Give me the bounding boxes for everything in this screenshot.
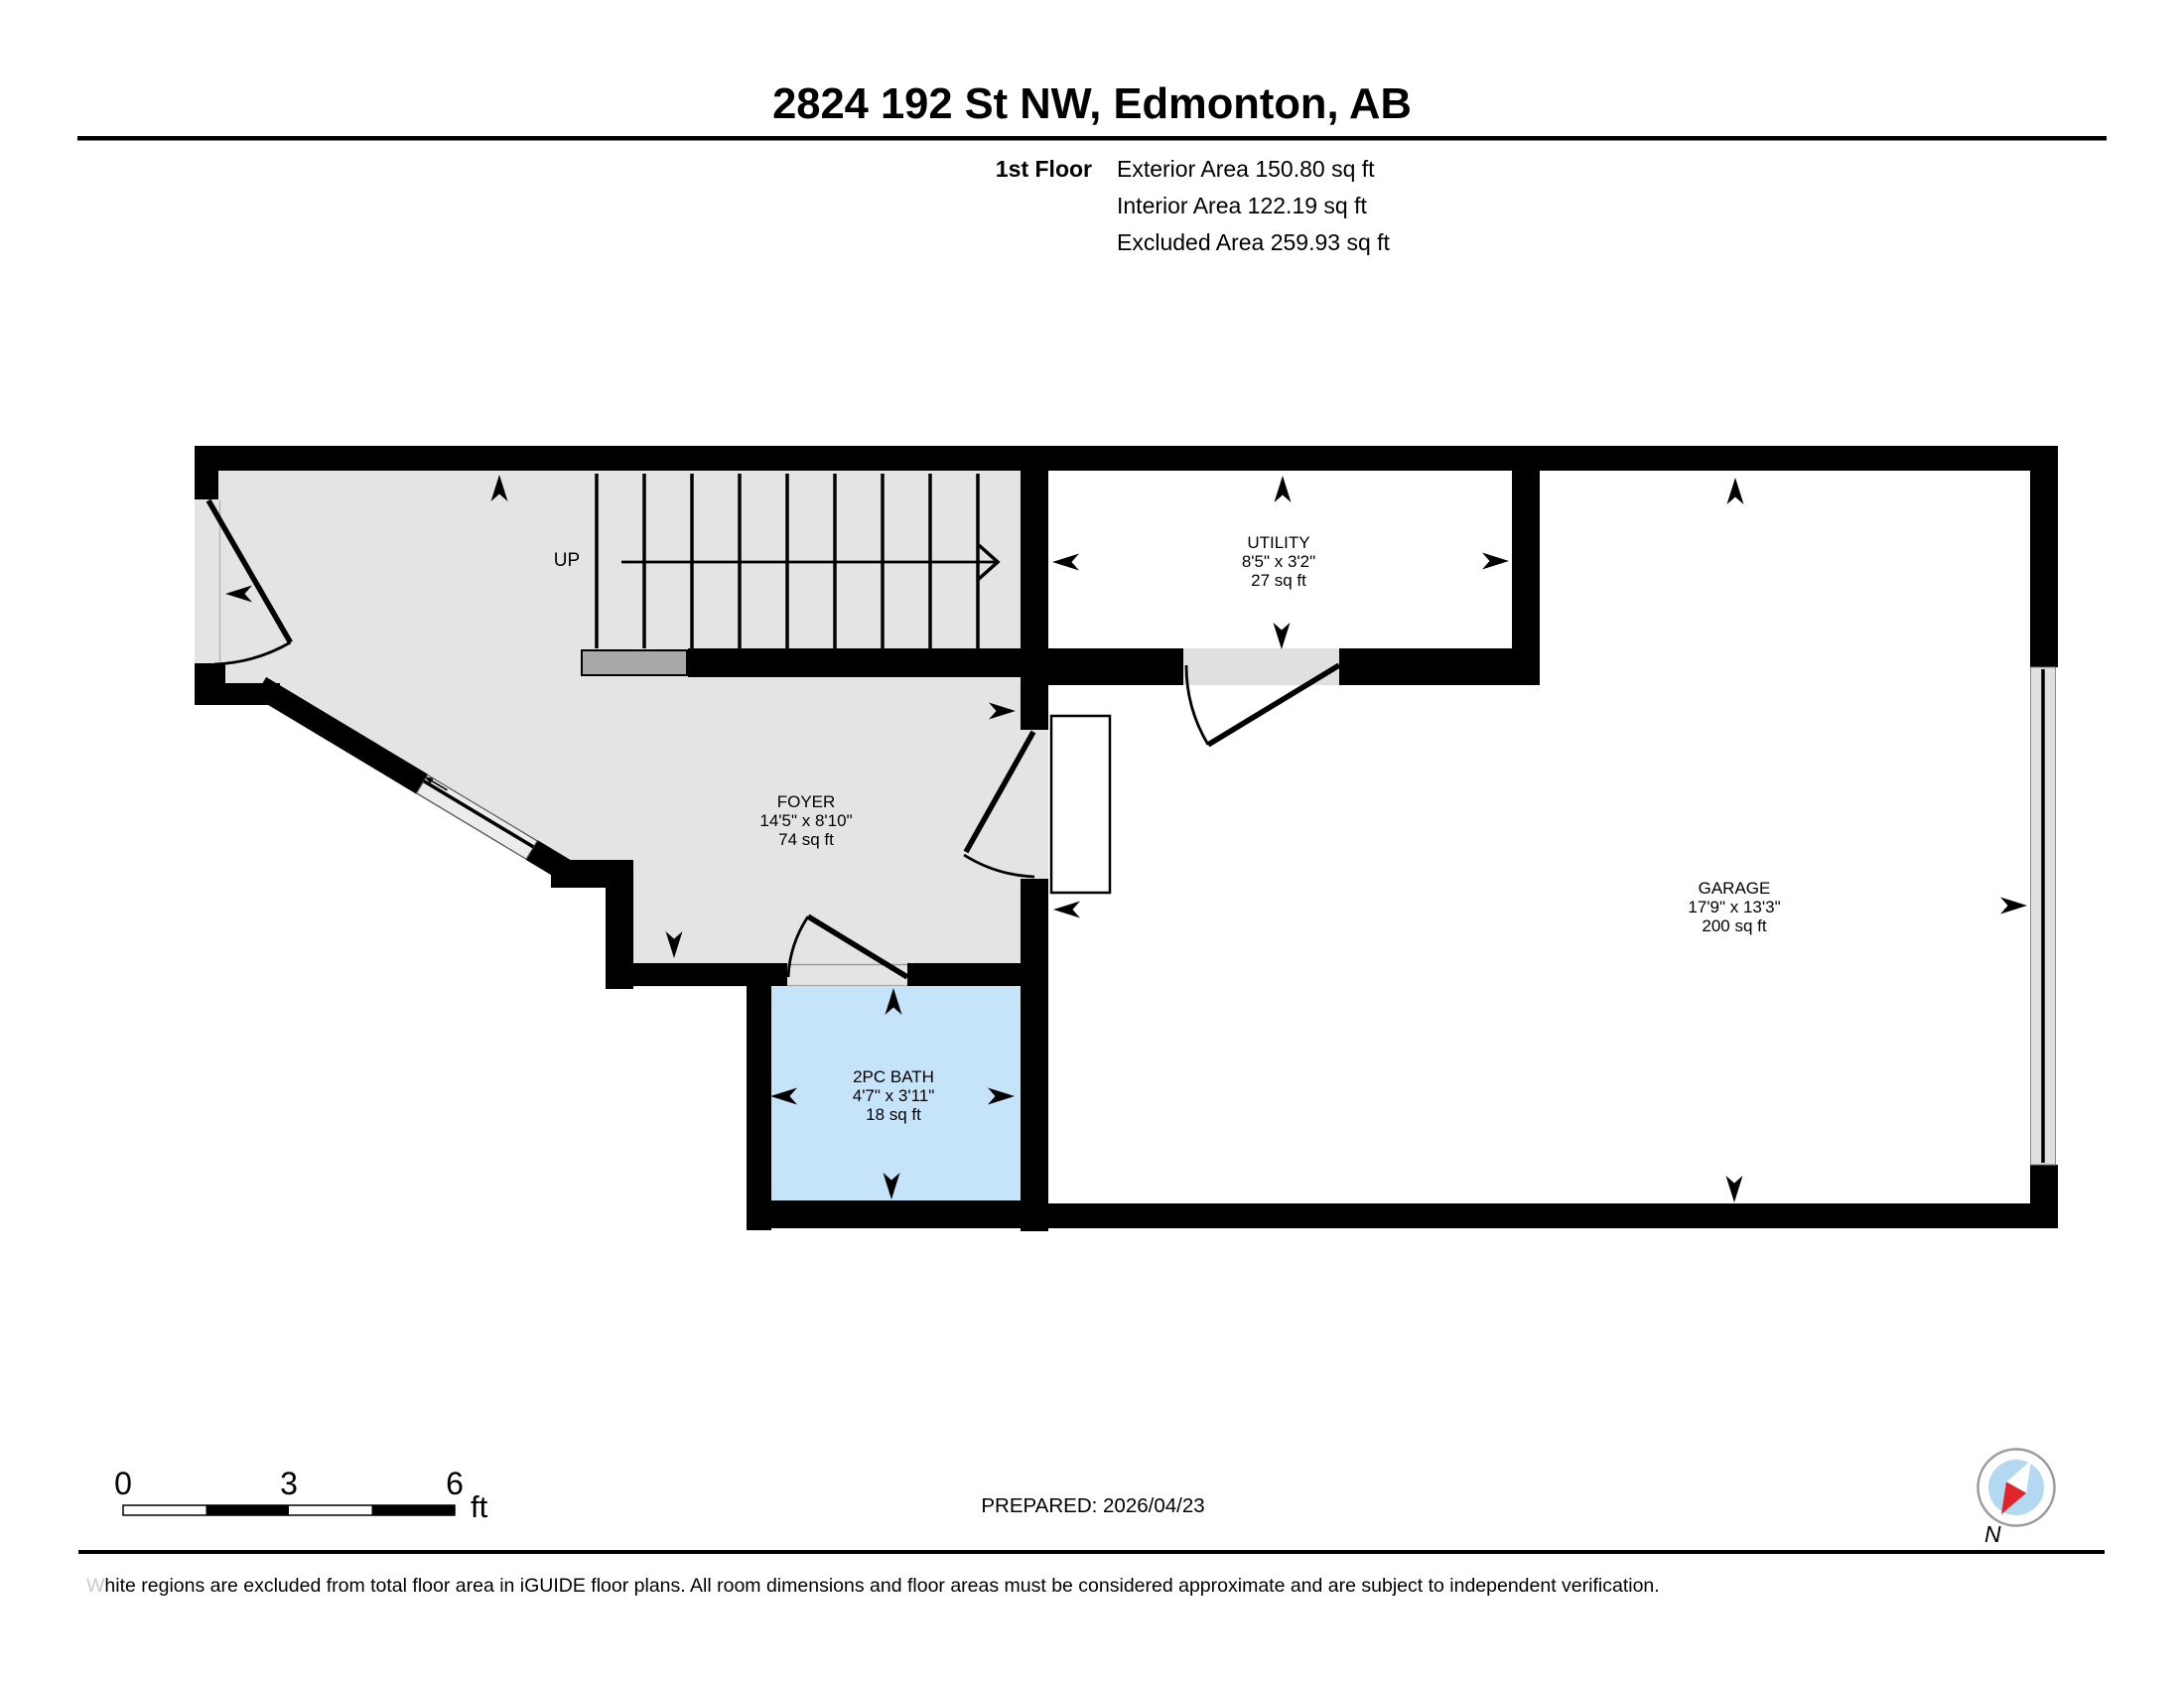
svg-text:2824 192 St NW, Edmonton, AB: 2824 192 St NW, Edmonton, AB xyxy=(772,80,1412,128)
svg-text:Interior Area 122.19 sq ft: Interior Area 122.19 sq ft xyxy=(1117,193,1367,218)
svg-text:White regions are excluded fro: White regions are excluded from total fl… xyxy=(86,1575,1660,1597)
svg-text:Exterior Area 150.80 sq ft: Exterior Area 150.80 sq ft xyxy=(1117,156,1375,182)
svg-text:FOYER: FOYER xyxy=(777,792,836,811)
svg-text:14'5" x 8'10": 14'5" x 8'10" xyxy=(759,811,852,830)
svg-text:ft: ft xyxy=(471,1489,488,1524)
svg-text:2PC BATH: 2PC BATH xyxy=(853,1067,934,1086)
svg-text:UP: UP xyxy=(554,550,580,571)
svg-text:Excluded Area 259.93 sq ft: Excluded Area 259.93 sq ft xyxy=(1117,229,1391,255)
svg-text:6: 6 xyxy=(446,1466,464,1501)
svg-text:8'5" x 3'2": 8'5" x 3'2" xyxy=(1242,552,1315,571)
svg-text:0: 0 xyxy=(114,1466,132,1501)
svg-text:PREPARED: 2026/04/23: PREPARED: 2026/04/23 xyxy=(981,1494,1204,1517)
svg-text:UTILITY: UTILITY xyxy=(1247,533,1309,552)
svg-text:74 sq ft: 74 sq ft xyxy=(778,830,834,849)
svg-text:18 sq ft: 18 sq ft xyxy=(866,1105,921,1124)
svg-text:200 sq ft: 200 sq ft xyxy=(1702,916,1766,935)
svg-text:GARAGE: GARAGE xyxy=(1699,879,1771,898)
svg-text:27 sq ft: 27 sq ft xyxy=(1251,571,1306,590)
svg-text:4'7" x 3'11": 4'7" x 3'11" xyxy=(853,1086,935,1105)
svg-text:N: N xyxy=(1984,1521,2001,1547)
svg-text:1st Floor: 1st Floor xyxy=(996,156,1092,182)
svg-text:17'9" x 13'3": 17'9" x 13'3" xyxy=(1688,898,1780,916)
svg-text:3: 3 xyxy=(280,1466,298,1501)
